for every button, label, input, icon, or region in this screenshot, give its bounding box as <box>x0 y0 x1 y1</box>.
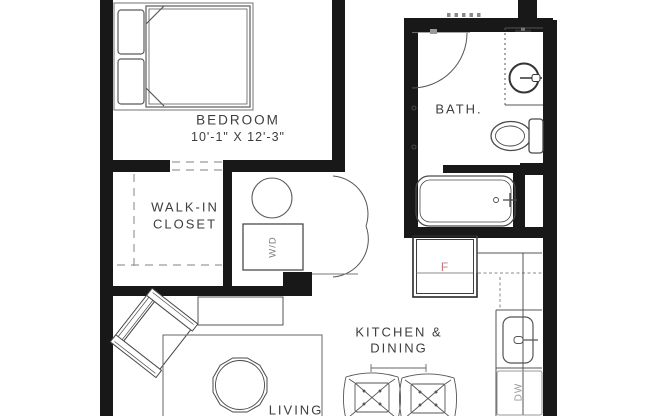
console-table-icon <box>198 297 283 325</box>
kitchen-dining-label-line2: DINING <box>370 341 428 356</box>
bath-label: BATH. <box>435 102 482 117</box>
bathtub-icon <box>416 176 517 226</box>
bedroom-dimensions: 10'-1" X 12'-3" <box>191 130 285 144</box>
washer-dryer-label: W/D <box>268 236 279 257</box>
double-door-icon <box>333 176 368 277</box>
furniture-layer <box>0 0 652 416</box>
bedroom-label: BEDROOM <box>196 113 280 128</box>
dining-chair-icon <box>343 373 400 416</box>
dining-chair-icon <box>399 374 456 416</box>
vanity-sink-icon <box>505 28 543 106</box>
water-heater-icon <box>252 178 292 218</box>
bed-icon <box>114 3 253 110</box>
kitchen-counter-lines <box>477 236 542 416</box>
fridge-label: F <box>441 260 449 274</box>
dining-table-icon <box>371 364 426 372</box>
kitchen-dining-label-line1: KITCHEN & <box>355 325 442 340</box>
vent-ticks <box>447 13 481 17</box>
living-label: LIVING <box>269 403 324 416</box>
kitchen-sink-icon <box>503 317 538 363</box>
bath-door-icon <box>412 29 470 149</box>
floor-plan: BEDROOM 10'-1" X 12'-3" WALK-IN CLOSET B… <box>0 0 652 416</box>
closet-label-line2: CLOSET <box>153 217 217 232</box>
dishwasher-label: DW <box>514 383 525 402</box>
closet-label-line1: WALK-IN <box>151 200 219 215</box>
coffee-table-icon <box>213 358 267 412</box>
armchair-icon <box>110 288 198 377</box>
toilet-icon <box>491 119 543 153</box>
